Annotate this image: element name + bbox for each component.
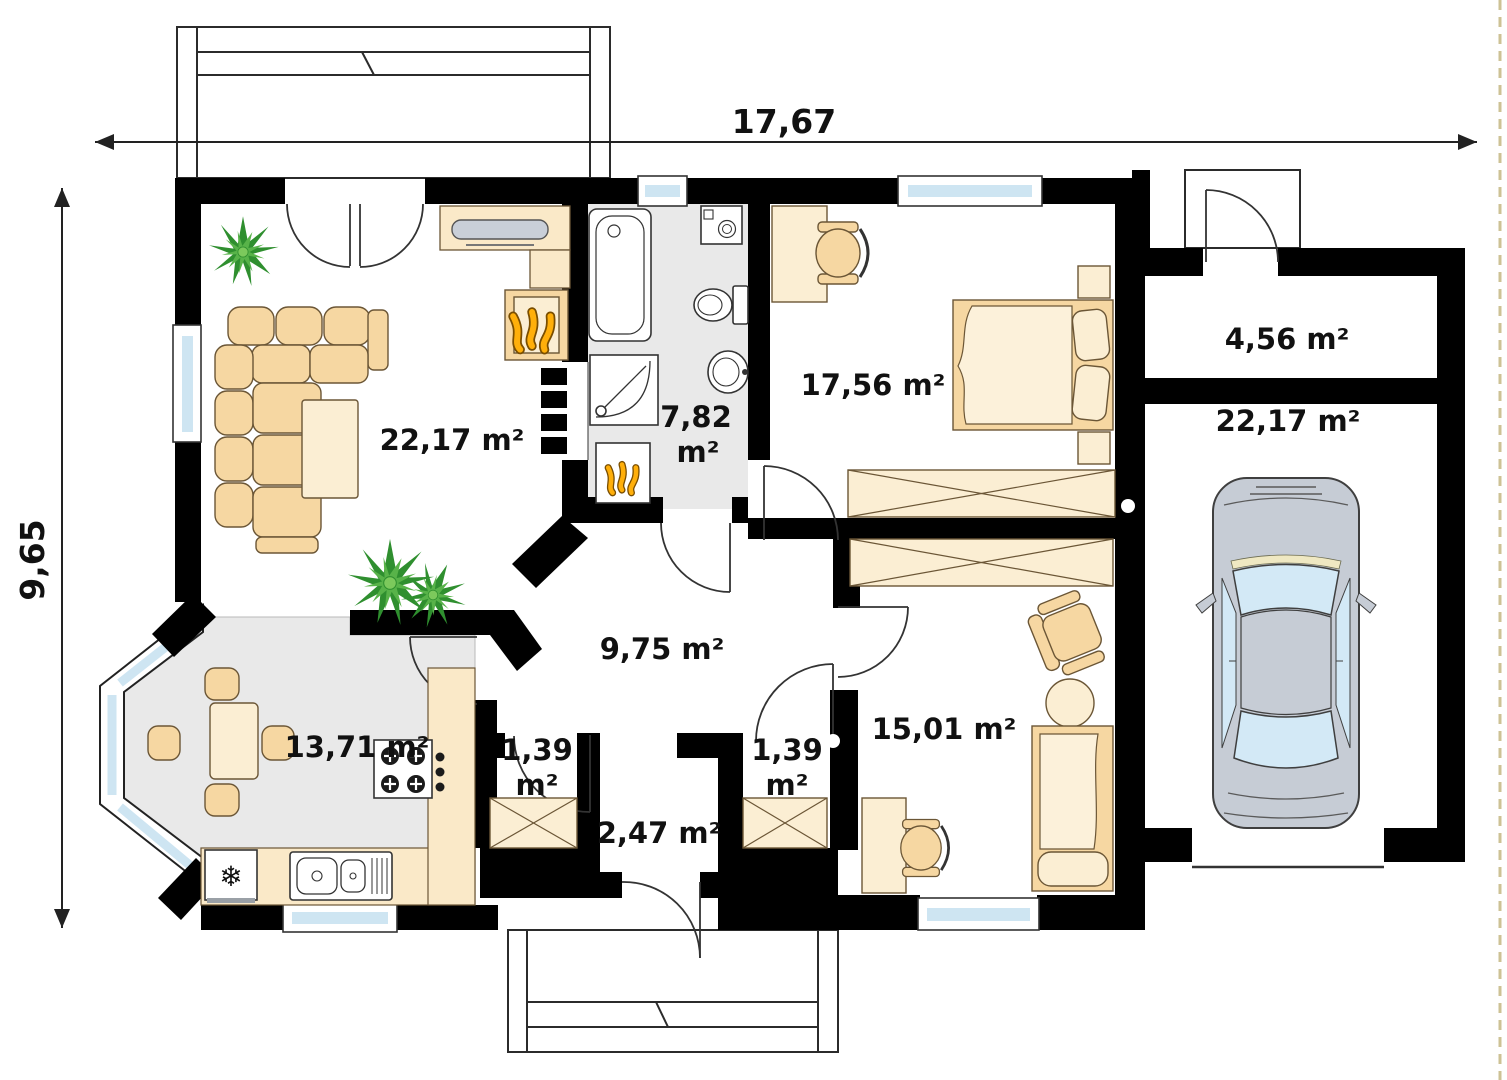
- height-dimension-label: 9,65: [13, 519, 52, 600]
- arrowhead-left-icon: [95, 134, 114, 150]
- fridge: ❄: [205, 850, 257, 903]
- kitchen-window: [283, 903, 397, 932]
- closet-right-area-label: 1,39: [751, 733, 823, 767]
- bathtub: [589, 209, 651, 341]
- kitchen-counter-right: [428, 668, 475, 905]
- shower: [590, 355, 658, 425]
- room-window: [918, 898, 1039, 930]
- living-room-window: [173, 325, 201, 442]
- closet-left-unit-label: m²: [516, 768, 559, 802]
- bedroom: 17,56 m²: [772, 206, 1115, 517]
- toilet: [694, 286, 748, 324]
- vestibule-label: 2,47 m²: [597, 816, 722, 850]
- nightstand: [1078, 266, 1110, 298]
- desk-chair: [816, 222, 868, 284]
- sofa-bed: [1032, 726, 1113, 891]
- kitchen-label: 13,71 m²: [285, 730, 430, 764]
- rear-window: [1234, 711, 1338, 768]
- bedroom-label: 17,56 m²: [801, 368, 946, 402]
- plant-icon: [209, 216, 279, 286]
- dimension-width: 17,67: [95, 102, 1477, 150]
- closet-right: 1,39 m²: [743, 733, 827, 848]
- entrance-steps: [508, 930, 838, 1052]
- flame-icon: [511, 316, 521, 350]
- closet-right-unit-label: m²: [766, 768, 809, 802]
- bathroom-unit-label: m²: [677, 435, 720, 469]
- closet-left: 1,39 m²: [490, 733, 577, 848]
- garage-label: 22,17 m²: [1216, 404, 1361, 438]
- bedroom-window: [898, 176, 1042, 206]
- flame-icon: [607, 467, 614, 493]
- coffee-table: [302, 400, 358, 498]
- water-heater: [596, 443, 650, 503]
- terrace: [177, 27, 610, 178]
- snowflake-icon: ❄: [219, 860, 242, 893]
- tv-icon: [452, 220, 548, 239]
- desk-chair: [901, 819, 949, 876]
- fireplace: [505, 290, 568, 360]
- washbasin: [708, 351, 748, 393]
- hinge-dot-icon: [1121, 499, 1135, 513]
- armchair: [1024, 588, 1110, 682]
- hall-label: 9,75 m²: [600, 632, 725, 666]
- sideboard-tv: [440, 206, 570, 288]
- car: [1196, 478, 1376, 828]
- room2: 15,01 m²: [850, 539, 1113, 893]
- dimension-height: 9,65: [13, 188, 70, 928]
- living-room-label: 22,17 m²: [380, 423, 525, 457]
- side-table: [1046, 679, 1094, 727]
- arrowhead-right-icon: [1458, 134, 1477, 150]
- windshield: [1233, 565, 1339, 616]
- living-room: 22,17 m²: [209, 206, 570, 553]
- terrace-french-door: [287, 204, 423, 267]
- arrowhead-down-icon: [54, 909, 70, 928]
- wardrobe: [850, 539, 1113, 586]
- sink: [290, 852, 392, 900]
- entrance-door: [622, 882, 700, 958]
- chimney: [541, 362, 588, 460]
- bathroom-door: [661, 523, 730, 592]
- bathroom-window: [638, 176, 687, 206]
- roof: [1241, 610, 1331, 715]
- entry-porch: [1185, 170, 1300, 248]
- floor-plan-canvas: 17,67 9,65: [0, 0, 1507, 1080]
- nightstand: [1078, 432, 1110, 464]
- hinge-dot-icon: [826, 734, 840, 748]
- washing-machine: [701, 206, 742, 244]
- flame-icon: [621, 465, 624, 491]
- arrowhead-up-icon: [54, 188, 70, 207]
- front-entry-door: [1206, 190, 1278, 262]
- entry-label: 4,56 m²: [1225, 322, 1350, 356]
- room2-label: 15,01 m²: [872, 712, 1017, 746]
- room-door: [838, 607, 908, 677]
- closet-left-area-label: 1,39: [501, 733, 573, 767]
- width-dimension-label: 17,67: [732, 102, 836, 141]
- bathroom-area-label: 7,82: [660, 400, 732, 434]
- bed: [953, 300, 1113, 430]
- desk: [862, 798, 906, 893]
- flame-icon: [530, 312, 533, 346]
- wardrobe: [848, 470, 1115, 517]
